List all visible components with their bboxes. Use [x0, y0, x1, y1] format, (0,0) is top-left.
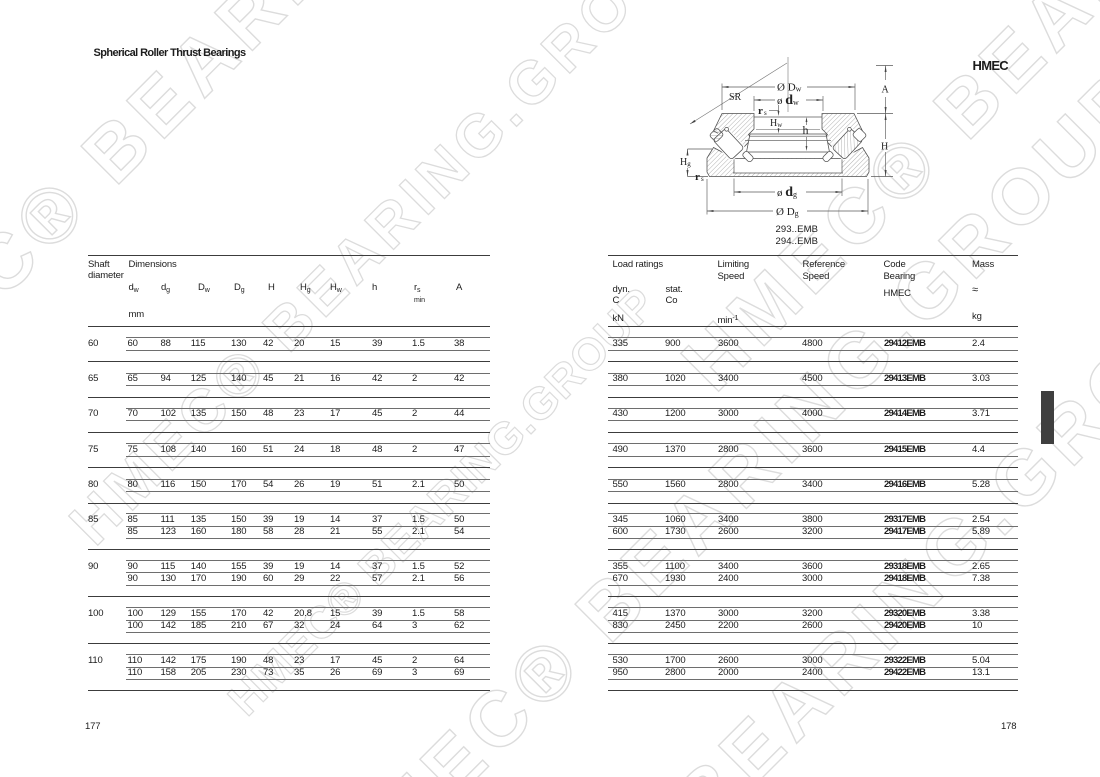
svg-text:h: h [803, 123, 809, 137]
svg-text:r: r [758, 105, 763, 117]
svg-text:Ø Dg: Ø Dg [776, 206, 799, 218]
svg-text:s: s [701, 175, 704, 183]
svg-text:ø dw: ø dw [777, 93, 799, 108]
svg-text:Hg: Hg [680, 157, 691, 168]
svg-text:H: H [881, 142, 888, 153]
svg-text:Ø Dw: Ø Dw [777, 82, 802, 94]
svg-text:A: A [882, 85, 890, 96]
svg-text:r: r [695, 171, 700, 183]
svg-text:ø dg: ø dg [777, 185, 797, 200]
svg-text:s: s [764, 109, 767, 117]
svg-text:Hw: Hw [770, 118, 783, 129]
svg-text:SR: SR [729, 92, 742, 103]
